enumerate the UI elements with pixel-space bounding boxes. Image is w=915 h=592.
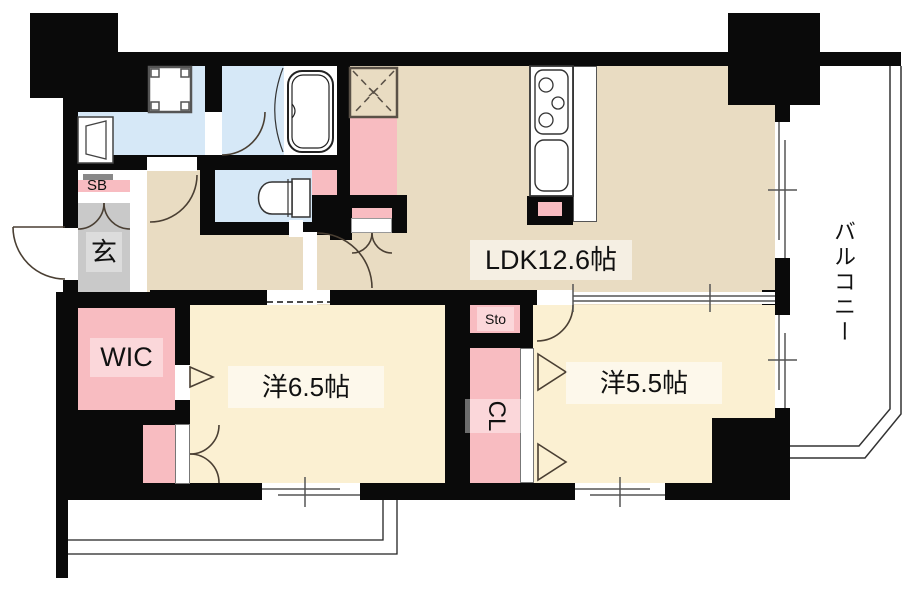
closet-folding-door — [538, 444, 566, 480]
corridor-railing — [68, 500, 397, 554]
kitchen-unit — [530, 66, 573, 196]
closet-folding-door — [538, 354, 566, 390]
toilet — [259, 179, 311, 217]
kitchen-sink — [535, 140, 568, 191]
shoebox-door-swing — [78, 203, 104, 229]
washing-machine-pan — [149, 67, 191, 112]
ldk-label: LDK12.6帖 — [470, 240, 632, 280]
balcony-label: バルコニー — [828, 190, 858, 375]
washroom-door-swing — [150, 175, 197, 222]
bedroom1-label: 洋6.5帖 — [228, 366, 384, 408]
plan-symbols-layer — [0, 0, 915, 592]
cabinet-door-swing — [352, 233, 372, 253]
storage-label: Sto — [477, 307, 514, 331]
cabinet-door-swing — [372, 233, 392, 253]
bedroom2-door-swing — [537, 305, 573, 341]
bedroom2-label: 洋5.5帖 — [566, 362, 722, 404]
bedroom1-closet-door-swing — [190, 425, 219, 454]
entrance-label: 玄 — [86, 232, 122, 272]
entrance-door-swing — [13, 227, 65, 279]
closet-label: CL — [465, 399, 527, 433]
wic-label: WIC — [90, 338, 163, 377]
bathtub — [275, 68, 333, 152]
shoebox-door-swing — [104, 203, 130, 229]
shoebox-label: SB — [80, 177, 114, 193]
bedroom1-closet-door-swing — [190, 454, 219, 483]
floor-plan: LDK12.6帖 洋6.5帖 洋5.5帖 WIC 玄 Sto CL SB バルコ… — [0, 0, 915, 592]
wic-folding-door — [190, 367, 213, 387]
ldk-door-swing — [317, 233, 372, 288]
washbasin — [78, 117, 113, 163]
inspection-hatch — [350, 68, 397, 117]
bathroom-door-swing — [222, 112, 265, 155]
